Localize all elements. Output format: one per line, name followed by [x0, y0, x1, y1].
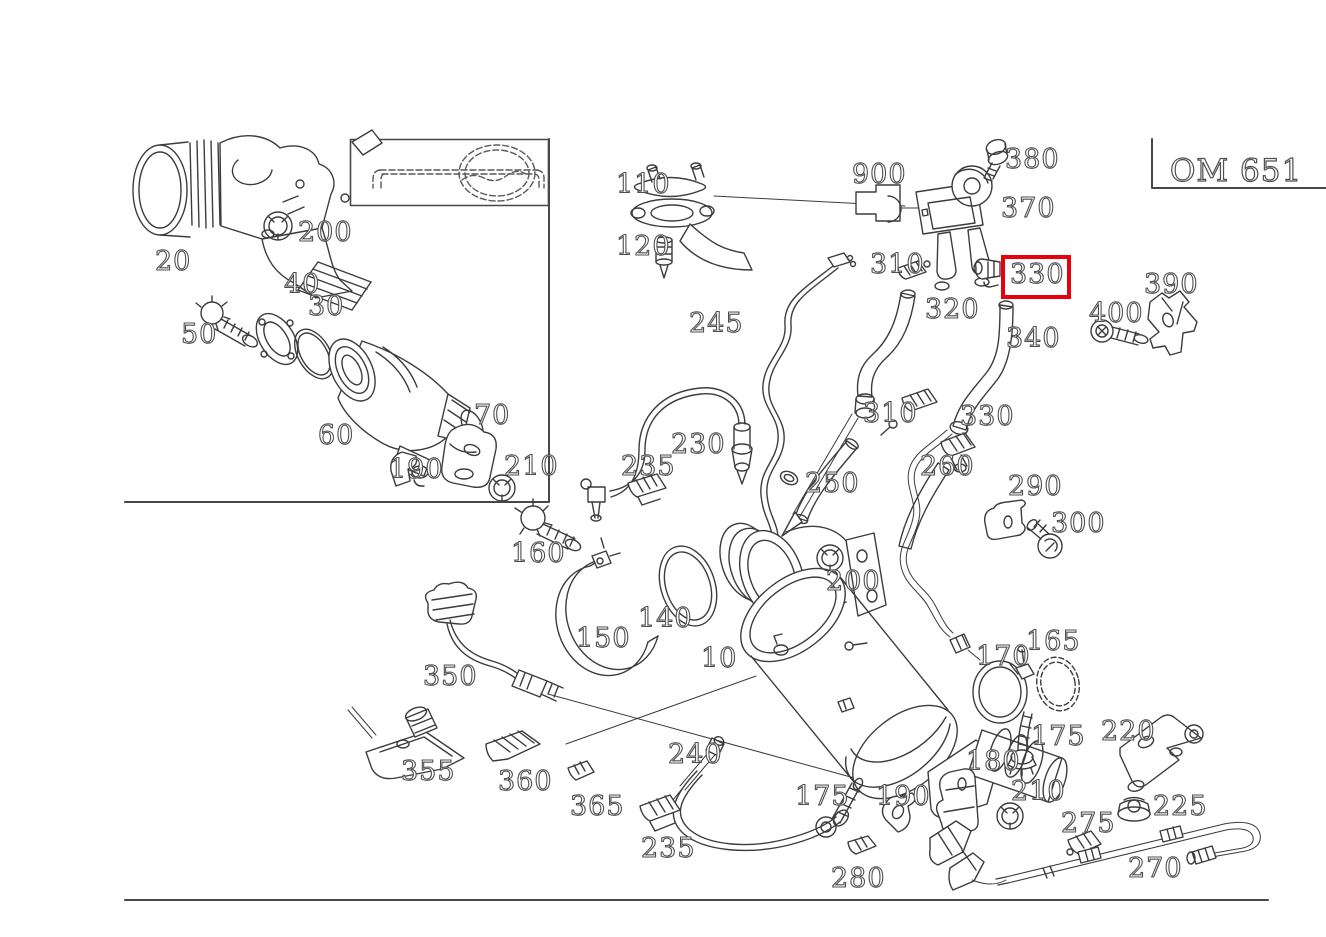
part-label-400[interactable]: 400 [1089, 298, 1144, 329]
part-label-365[interactable]: 365 [570, 791, 625, 822]
part-label-310[interactable]: 310 [870, 249, 925, 280]
parts-diagram-canvas: OM 651 202004030506070190210110120900380… [0, 0, 1326, 937]
part-label-260[interactable]: 260 [920, 451, 975, 482]
part-label-60[interactable]: 60 [318, 420, 354, 451]
part-label-275[interactable]: 275 [1061, 808, 1116, 839]
part-label-290[interactable]: 290 [1008, 471, 1063, 502]
part-label-180[interactable]: 180 [966, 746, 1021, 777]
part-labels-layer: OM 651 202004030506070190210110120900380… [0, 0, 1326, 937]
engine-code: OM 651 [1170, 153, 1302, 189]
part-label-175[interactable]: 175 [1031, 721, 1086, 752]
part-label-330[interactable]: 330 [960, 401, 1015, 432]
part-label-110[interactable]: 110 [616, 169, 671, 200]
part-label-30[interactable]: 30 [308, 291, 344, 322]
part-label-340[interactable]: 340 [1006, 323, 1061, 354]
part-label-270[interactable]: 270 [1128, 853, 1183, 884]
part-label-350[interactable]: 350 [423, 661, 478, 692]
part-label-20[interactable]: 20 [155, 246, 191, 277]
part-label-170[interactable]: 170 [976, 641, 1031, 672]
part-label-210[interactable]: 210 [504, 451, 559, 482]
part-label-200[interactable]: 200 [298, 217, 353, 248]
part-label-360[interactable]: 360 [498, 766, 553, 797]
part-label-200[interactable]: 200 [826, 566, 881, 597]
part-label-355[interactable]: 355 [401, 756, 456, 787]
part-label-370[interactable]: 370 [1001, 193, 1056, 224]
part-label-245[interactable]: 245 [689, 308, 744, 339]
part-label-240[interactable]: 240 [668, 739, 723, 770]
part-label-235[interactable]: 235 [641, 833, 696, 864]
part-label-165[interactable]: 165 [1026, 626, 1081, 657]
part-label-230[interactable]: 230 [671, 429, 726, 460]
part-label-50[interactable]: 50 [181, 319, 217, 350]
part-label-320[interactable]: 320 [925, 294, 980, 325]
part-label-225[interactable]: 225 [1153, 791, 1208, 822]
part-label-10[interactable]: 10 [701, 643, 737, 674]
part-label-190[interactable]: 190 [876, 781, 931, 812]
part-label-160[interactable]: 160 [511, 538, 566, 569]
part-label-390[interactable]: 390 [1144, 269, 1199, 300]
part-label-120[interactable]: 120 [616, 231, 671, 262]
part-label-220[interactable]: 220 [1101, 716, 1156, 747]
part-label-70[interactable]: 70 [474, 400, 510, 431]
part-label-900[interactable]: 900 [852, 159, 907, 190]
part-label-210[interactable]: 210 [1011, 776, 1066, 807]
part-label-150[interactable]: 150 [576, 623, 631, 654]
highlight-box [1001, 255, 1071, 299]
part-label-175[interactable]: 175 [795, 781, 850, 812]
part-label-310[interactable]: 310 [863, 398, 918, 429]
part-label-380[interactable]: 380 [1005, 144, 1060, 175]
part-label-280[interactable]: 280 [831, 863, 886, 894]
part-label-235[interactable]: 235 [621, 451, 676, 482]
part-label-140[interactable]: 140 [638, 603, 693, 634]
part-label-190[interactable]: 190 [389, 454, 444, 485]
part-label-250[interactable]: 250 [805, 468, 860, 499]
part-label-300[interactable]: 300 [1051, 508, 1106, 539]
